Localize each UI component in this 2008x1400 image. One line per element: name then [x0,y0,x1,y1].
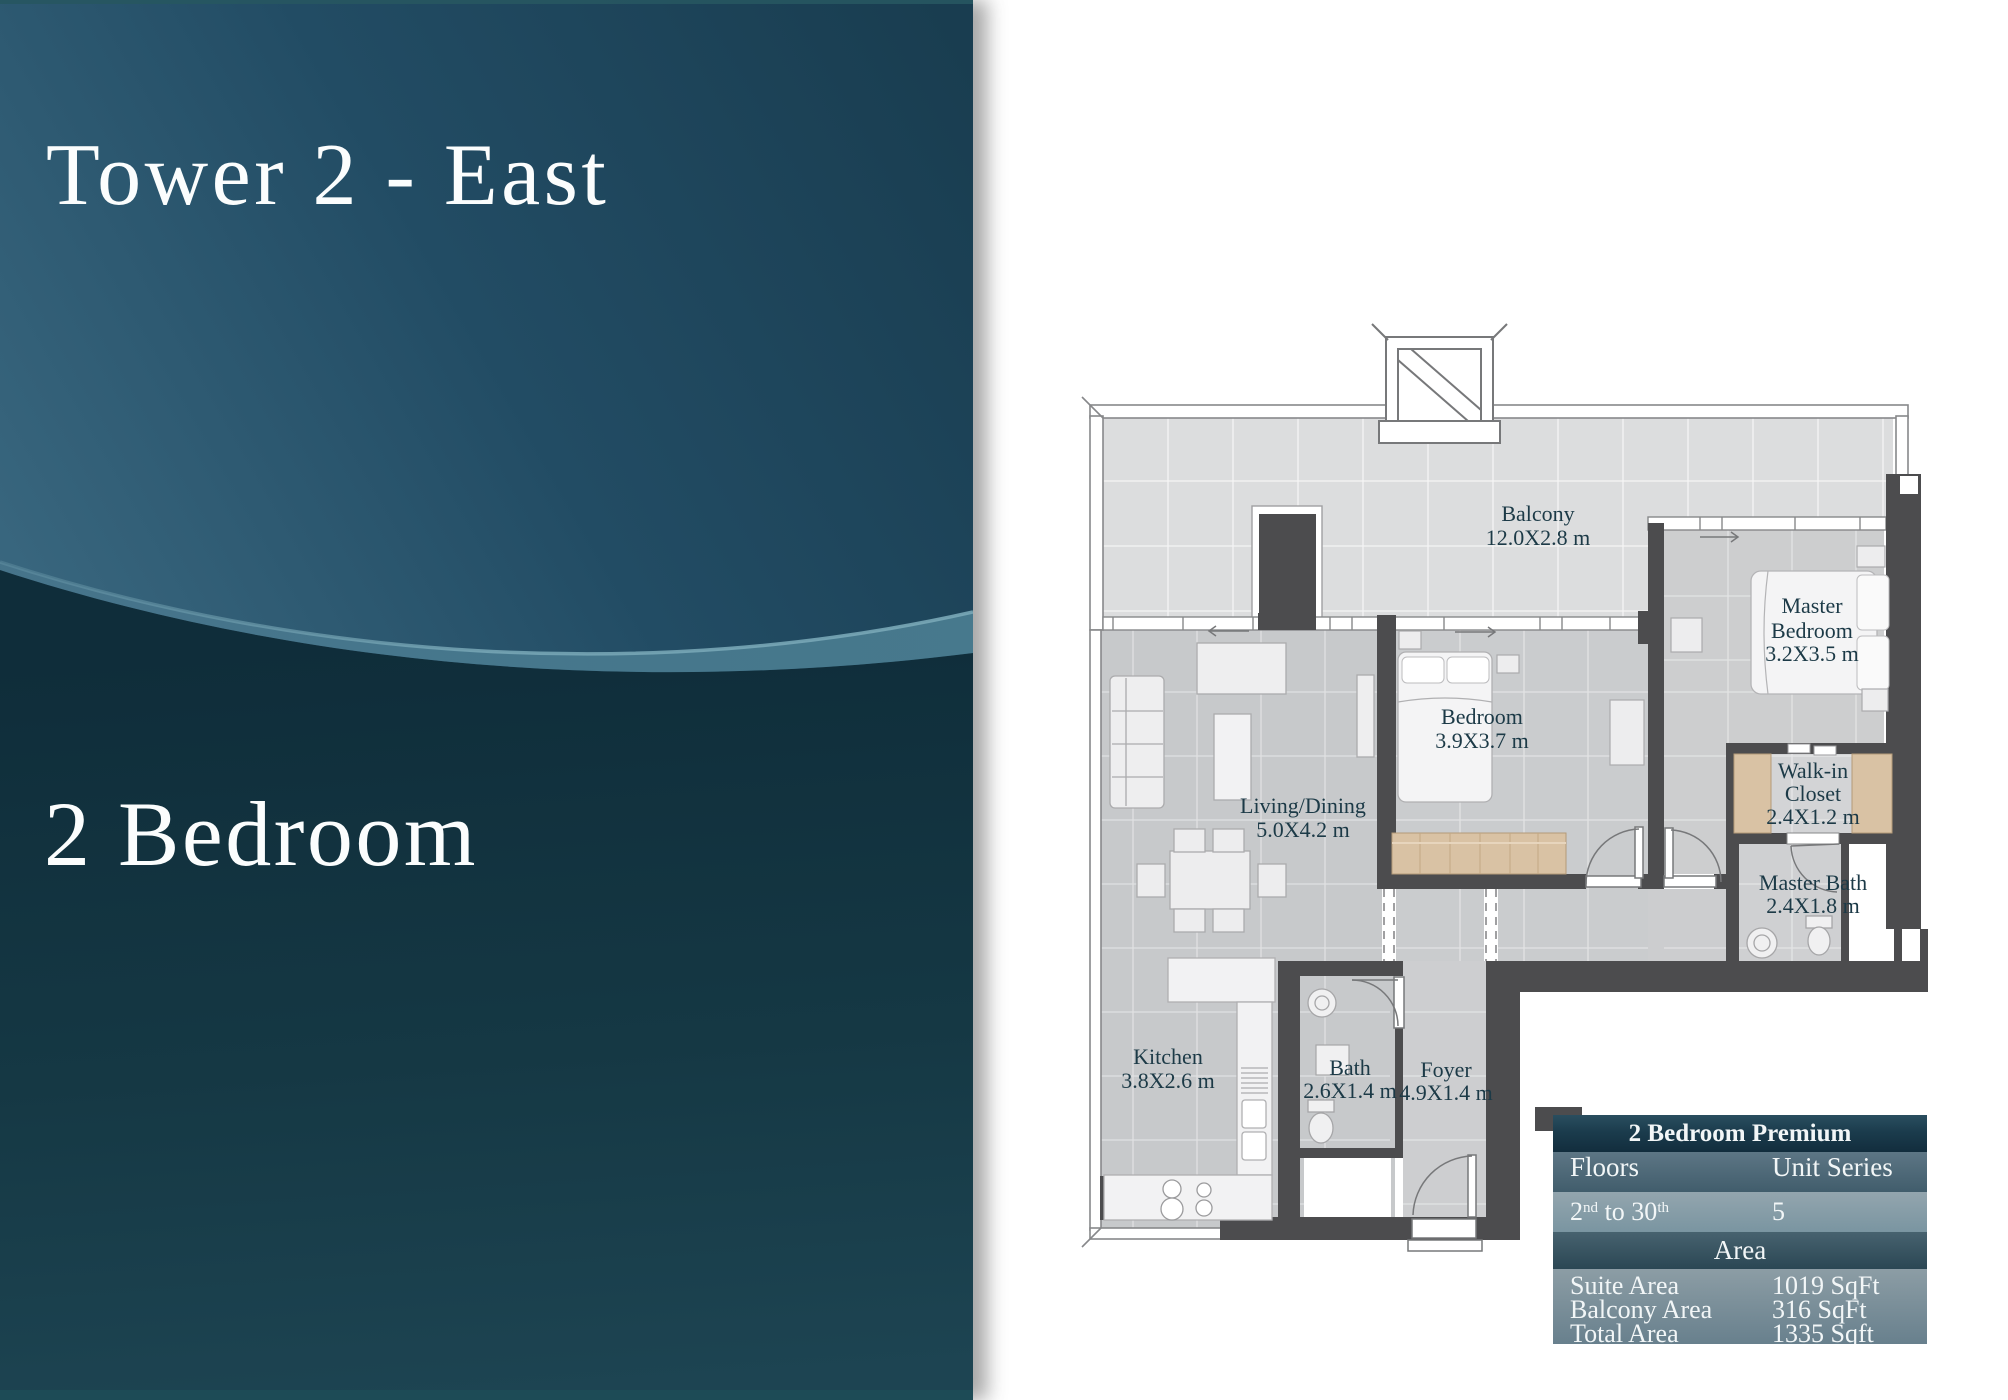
svg-text:Balcony: Balcony [1501,501,1574,526]
svg-text:Walk-in: Walk-in [1778,758,1848,783]
svg-text:2.6X1.4 m: 2.6X1.4 m [1303,1078,1397,1103]
svg-text:Foyer: Foyer [1420,1057,1472,1082]
svg-text:4.9X1.4 m: 4.9X1.4 m [1399,1080,1493,1105]
svg-text:3.9X3.7 m: 3.9X3.7 m [1435,728,1529,753]
svg-text:Kitchen: Kitchen [1133,1044,1203,1069]
svg-text:Living/Dining: Living/Dining [1240,793,1366,818]
svg-text:Bedroom: Bedroom [1771,618,1853,643]
svg-text:Bath: Bath [1329,1055,1371,1080]
svg-text:Bedroom: Bedroom [1441,704,1523,729]
svg-text:Master Bath: Master Bath [1759,870,1867,895]
svg-text:2.4X1.8 m: 2.4X1.8 m [1766,893,1860,918]
svg-text:12.0X2.8 m: 12.0X2.8 m [1486,525,1591,550]
svg-text:2.4X1.2 m: 2.4X1.2 m [1766,804,1860,829]
svg-text:5.0X4.2 m: 5.0X4.2 m [1256,817,1350,842]
svg-text:Closet: Closet [1785,781,1841,806]
svg-text:3.2X3.5 m: 3.2X3.5 m [1765,641,1859,666]
svg-text:Master: Master [1781,593,1843,618]
svg-text:3.8X2.6 m: 3.8X2.6 m [1121,1068,1215,1093]
